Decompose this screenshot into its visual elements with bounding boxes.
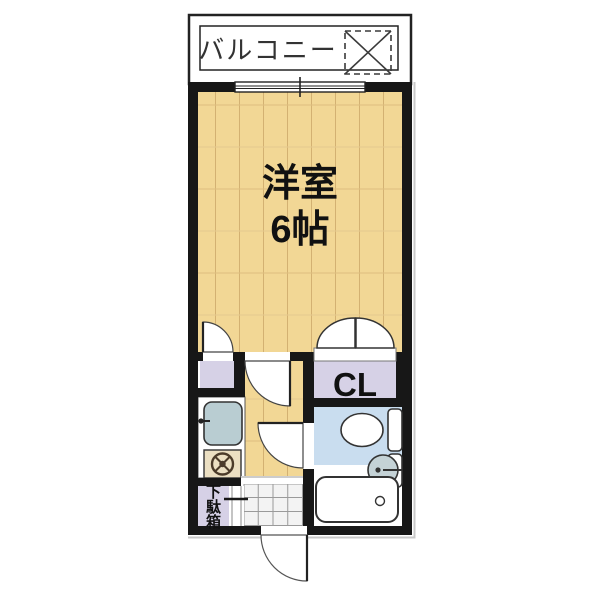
wall-right: [402, 82, 412, 535]
floorplan-stage: バルコニー: [0, 0, 600, 600]
wall-bottom-right: [307, 526, 412, 535]
wall-storage-bottom: [198, 388, 245, 397]
shoe-cabinet-label: 下 駄 箱: [206, 484, 222, 531]
svg-text:箱: 箱: [206, 513, 221, 531]
entrance-step: [241, 476, 303, 484]
wall-left: [188, 82, 198, 535]
floorplan-canvas: バルコニー: [0, 0, 600, 600]
balcony-label: バルコニー: [198, 35, 337, 65]
entrance-tile-floor: [244, 484, 303, 526]
storage-door-opening: [203, 352, 233, 361]
balcony: バルコニー: [189, 15, 411, 84]
wall-hall-bath-upper: [303, 352, 314, 423]
bathtub-icon: [316, 477, 398, 522]
bathroom-door-opening: [303, 423, 314, 469]
stove-burner-icon: [204, 450, 241, 478]
wall-hall-bath-lower: [303, 469, 314, 526]
wall-bottom-left: [188, 526, 261, 535]
entrance-door-opening: [261, 526, 307, 535]
closet-label: CL: [333, 366, 377, 403]
kitchen-sink-icon: [204, 402, 242, 445]
entrance-door-swing: [261, 535, 307, 581]
main-room-label: 洋室: [262, 162, 338, 205]
room-door-opening: [245, 352, 290, 361]
storage-box: [200, 361, 234, 389]
main-room-size-label: 6帖: [270, 209, 329, 251]
kitchen-counter: [198, 397, 245, 478]
